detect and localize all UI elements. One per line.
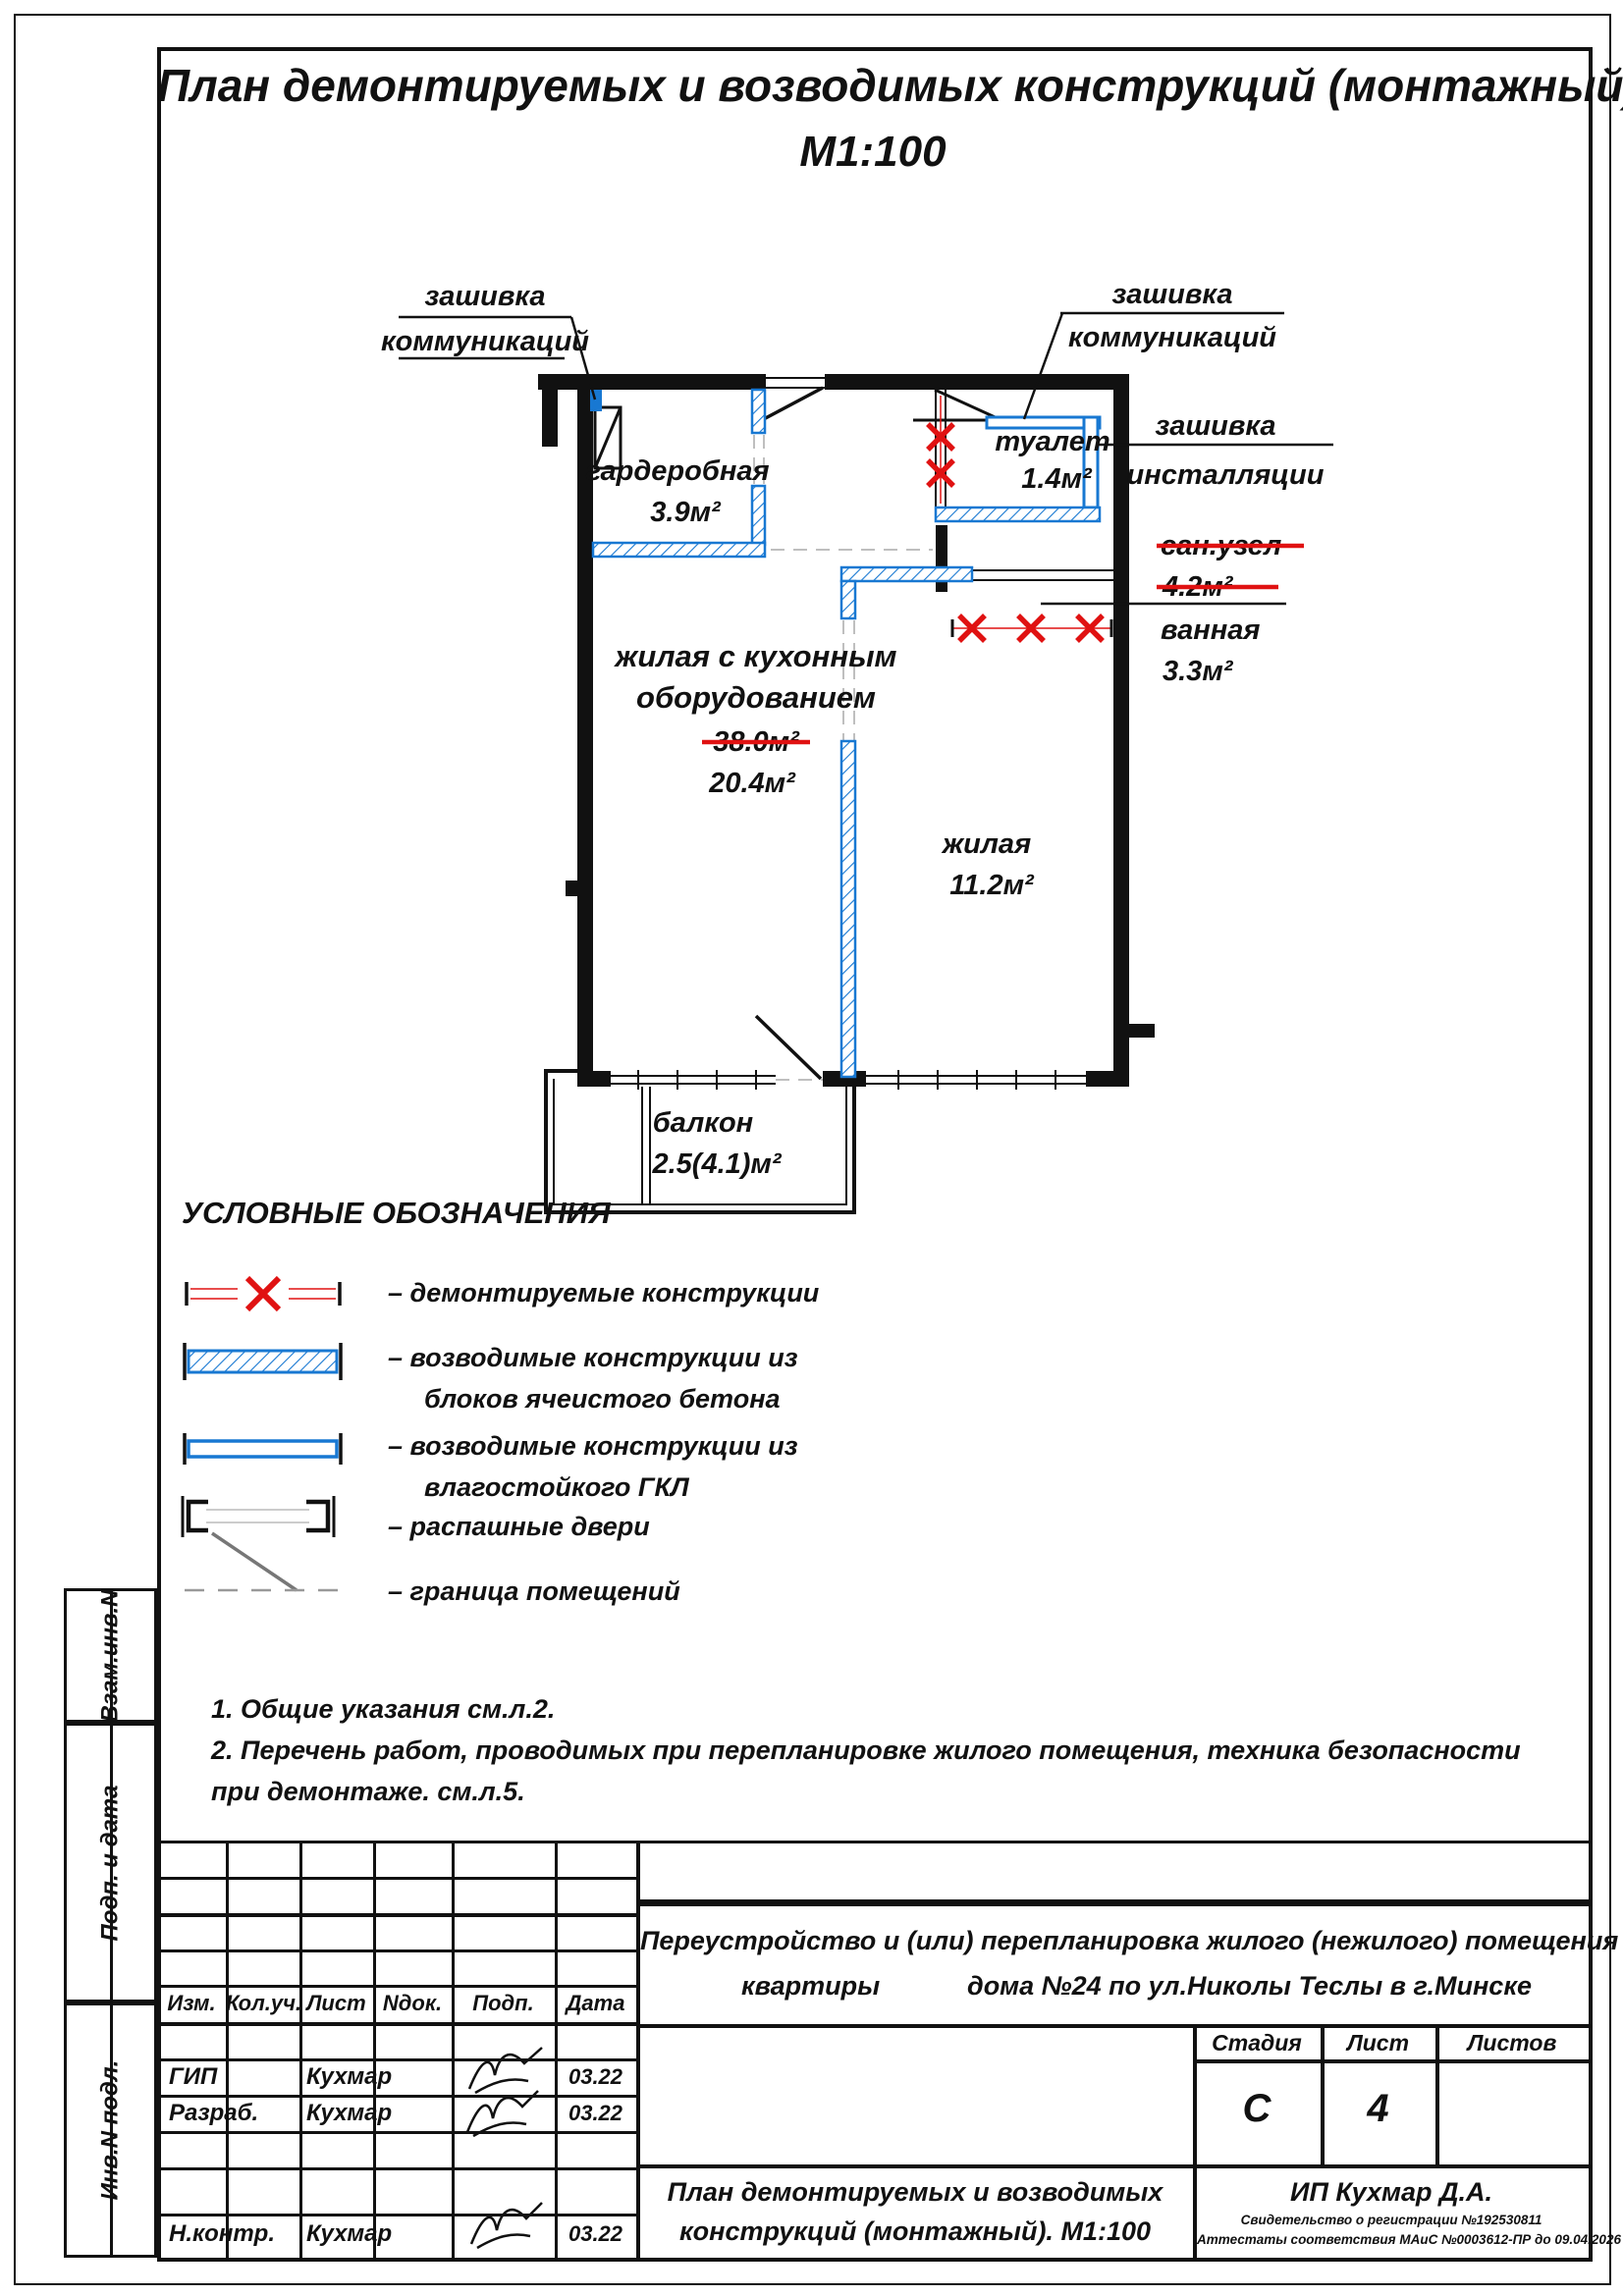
room-living-kitchen-new: 20.4м² <box>708 768 796 799</box>
legend-item-3a: – возводимые конструкции из <box>388 1431 798 1462</box>
drawing-sheet: План демонтируемых и возводимых конструк… <box>0 0 1623 2296</box>
tb-date-nkontr: 03.22 <box>555 2221 636 2247</box>
label-bath-area: 3.3м² <box>1163 656 1234 687</box>
tb-role-gip: ГИП <box>169 2063 217 2091</box>
callout-install-line1: зашивка <box>1155 410 1275 442</box>
callout-right-line2: коммуникаций <box>1068 322 1276 353</box>
tb-cert1: Свидетельство о регистрации №192530811 <box>1197 2213 1586 2227</box>
tb-role-nkontr: Н.контр. <box>169 2220 275 2248</box>
tb-col-list: Лист <box>299 1991 373 2016</box>
tb-sheets-label: Листов <box>1435 2030 1589 2056</box>
tb-vline <box>226 1841 229 2258</box>
callout-install-line2: инсталляции <box>1127 459 1325 491</box>
room-living: жилая <box>941 828 1031 860</box>
room-wardrobe-area: 3.9м² <box>650 497 722 528</box>
tb-doc-title2: конструкций (монтажный). М1:100 <box>640 2216 1190 2247</box>
tb-col-data: Дата <box>555 1991 636 2016</box>
tb-name-razrab: Кухмар <box>306 2100 392 2127</box>
tb-sheet-label: Лист <box>1321 2030 1435 2056</box>
callout-left-line2: коммуникаций <box>381 326 589 357</box>
tb-line <box>157 1877 636 1880</box>
legend-item-2a: – возводимые конструкции из <box>388 1343 798 1373</box>
tb-col-koluch: Кол.уч. <box>226 1991 299 2016</box>
note-3: при демонтаже. см.л.5. <box>211 1777 525 1807</box>
tb-vline <box>299 1841 302 2258</box>
tb-col-ndok: Nдок. <box>373 1991 452 2016</box>
tb-line <box>157 2058 636 2061</box>
room-balcony: балкон <box>653 1107 753 1139</box>
sheet-title-line1: План демонтируемых и возводимых конструк… <box>157 59 1589 112</box>
sheet-title-line2: М1:100 <box>157 128 1589 177</box>
callout-left-line1: зашивка <box>424 281 545 312</box>
legend-item-1: – демонтируемые конструкции <box>388 1278 819 1308</box>
tb-stage-value: С <box>1193 2087 1321 2131</box>
tb-line <box>157 1913 636 1917</box>
tb-vline <box>373 1841 376 2258</box>
floor-plan: зашивка коммуникаций зашивка коммуникаци… <box>363 240 1404 1232</box>
legend-header: УСЛОВНЫЕ ОБОЗНАЧЕНИЯ <box>182 1196 611 1231</box>
tb-date-razrab: 03.22 <box>555 2101 636 2126</box>
tb-line <box>157 2095 636 2098</box>
legend-symbol-gkl <box>185 1433 341 1465</box>
tb-line <box>157 2214 636 2216</box>
tb-line <box>157 1949 636 1952</box>
tb-doc-title1: План демонтируемых и возводимых <box>640 2177 1190 2208</box>
legend-symbol-demolished <box>187 1278 340 1309</box>
callout-right-line1: зашивка <box>1111 279 1232 310</box>
tb-col-podp: Подп. <box>452 1991 555 2016</box>
room-wardrobe: гардеробная <box>585 455 769 487</box>
tb-stage-label: Стадия <box>1193 2030 1321 2056</box>
tb-line <box>636 2024 1589 2028</box>
room-living-kitchen-2: оборудованием <box>636 680 876 715</box>
tb-line <box>1193 2059 1589 2063</box>
signatures <box>452 2042 560 2258</box>
note-1: 1. Общие указания см.л.2. <box>211 1694 555 1725</box>
legend-item-3b: влагостойкого ГКЛ <box>424 1472 689 1503</box>
note-2: 2. Перечень работ, проводимых при перепл… <box>211 1735 1521 1766</box>
room-balcony-area: 2.5(4.1)м² <box>651 1148 782 1180</box>
tb-line <box>157 1841 1589 1843</box>
tb-org: ИП Кухмар Д.А. <box>1197 2177 1586 2208</box>
legend-item-5: – граница помещений <box>388 1576 680 1607</box>
legend-symbols <box>177 1256 393 1649</box>
tb-name-nkontr: Кухмар <box>306 2220 392 2248</box>
tb-line <box>157 1985 636 1988</box>
tb-date-gip: 03.22 <box>555 2064 636 2090</box>
tb-project-line1: Переустройство и (или) перепланировка жи… <box>640 1926 1585 1956</box>
tb-sheet-value: 4 <box>1321 2087 1435 2131</box>
tb-name-gip: Кухмар <box>306 2063 392 2091</box>
tb-line <box>636 2164 1589 2168</box>
tb-project-rest: дома №24 по ул.Николы Теслы в г.Минске <box>967 1971 1532 2002</box>
legend-item-4: – распашные двери <box>388 1512 650 1542</box>
tb-band <box>636 1899 1589 1906</box>
sidebar-divider <box>110 1588 113 2258</box>
tb-cert2: Аттестаты соответствия МАиС №0003612-ПР … <box>1197 2232 1586 2247</box>
label-bath: ванная <box>1161 614 1261 646</box>
legend-symbol-aerated-blocks <box>185 1343 341 1380</box>
room-toilet-area: 1.4м² <box>1021 463 1093 495</box>
tb-project-word: квартиры <box>741 1971 880 2002</box>
tb-line <box>157 2131 636 2134</box>
balcony-outline <box>546 1071 854 1212</box>
tb-line <box>157 2167 636 2170</box>
room-toilet: туалет <box>995 426 1109 457</box>
tb-col-izm: Изм. <box>157 1991 226 2016</box>
legend-item-2b: блоков ячеистого бетона <box>424 1384 781 1415</box>
tb-line <box>157 2022 636 2026</box>
tb-role-razrab: Разраб. <box>169 2100 258 2127</box>
room-living-area: 11.2м² <box>949 870 1035 901</box>
legend-symbol-doors <box>183 1496 334 1590</box>
room-living-kitchen-1: жилая с кухонным <box>614 639 897 673</box>
